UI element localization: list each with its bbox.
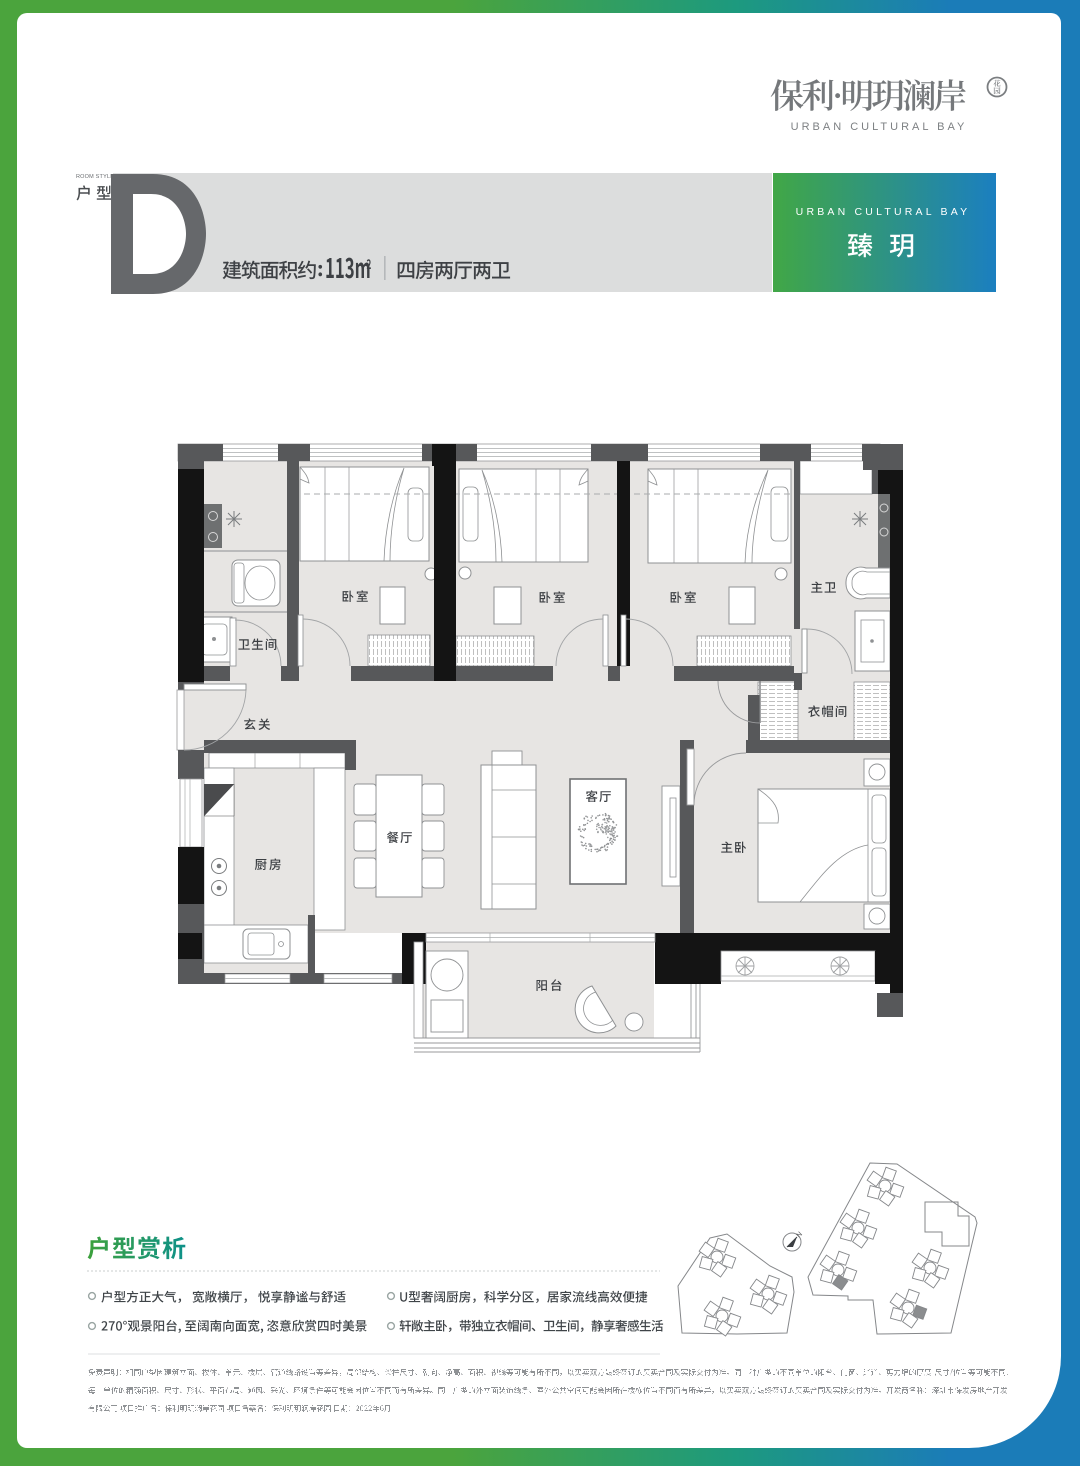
svg-text:N: N [795, 1231, 804, 1240]
